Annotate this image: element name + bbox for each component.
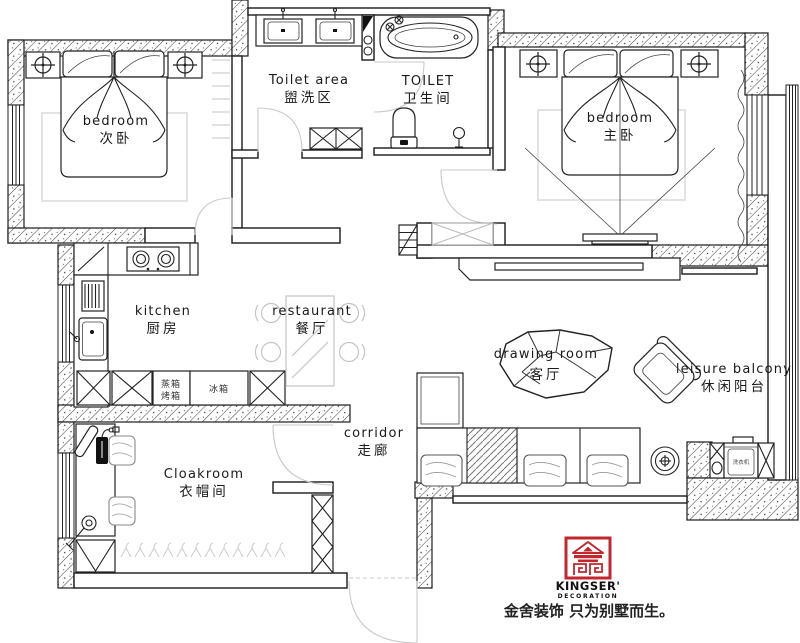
brand-name: KINGSER' bbox=[556, 579, 621, 593]
door-toilet-area bbox=[258, 108, 302, 152]
label-toilet-area-en: Toilet area bbox=[268, 73, 349, 88]
tv-icon bbox=[583, 234, 657, 244]
bathtub-icon bbox=[380, 16, 478, 58]
label-corridor-en: corridor bbox=[344, 426, 404, 441]
label-leisure-balcony-zh: 休闲阳台 bbox=[701, 379, 767, 395]
floor-plan-page: bedroom 次卧 Toilet area 盥洗区 TOILET 卫生间 be… bbox=[0, 0, 800, 643]
branding: KINGSER' DECORATION 金舍装饰 只为别墅而生。 bbox=[503, 538, 674, 620]
label-restaurant-en: restaurant bbox=[272, 304, 352, 319]
wardrobe-x-column bbox=[312, 495, 333, 573]
label-drawing-room-zh: 客厅 bbox=[530, 366, 563, 383]
balcony-cabinet-x-box bbox=[758, 443, 774, 478]
door-cloakroom bbox=[273, 425, 333, 485]
label-bedroom-secondary-zh: 次卧 bbox=[100, 131, 133, 147]
floor-speaker-icon bbox=[651, 447, 679, 475]
shoe-cabinet-v-box bbox=[76, 540, 115, 572]
label-steam-oven-2: 烤箱 bbox=[161, 390, 181, 402]
label-restaurant-zh: 餐厅 bbox=[296, 321, 329, 337]
label-toilet-area-zh: 盥洗区 bbox=[284, 90, 334, 106]
floor-drain-icon bbox=[454, 128, 465, 148]
label-toilet-en: TOILET bbox=[401, 74, 455, 89]
hanger-row bbox=[121, 543, 285, 557]
coffee-table-rock bbox=[500, 330, 612, 398]
chair-icon bbox=[255, 343, 280, 362]
brand-subtitle: DECORATION bbox=[558, 593, 619, 600]
door-bedroom-master bbox=[441, 170, 497, 224]
window-bedroom-master bbox=[747, 95, 768, 195]
chair-icon bbox=[340, 343, 365, 362]
window-bedroom-secondary bbox=[8, 105, 24, 185]
cabinet-x-box bbox=[310, 128, 362, 149]
tv-cabinet bbox=[459, 258, 680, 280]
label-cloakroom-zh: 衣帽间 bbox=[179, 484, 229, 500]
door-entrance bbox=[349, 578, 417, 643]
label-bedroom-master-en: bedroom bbox=[587, 111, 654, 126]
brand-tagline: 金舍装饰 只为别墅而生。 bbox=[503, 602, 674, 620]
room-bedroom-master bbox=[520, 50, 744, 262]
room-leisure-balcony bbox=[710, 437, 774, 478]
hall-cabinet-x-box bbox=[432, 223, 493, 245]
dish-rack-icon bbox=[82, 281, 104, 311]
label-steam-oven-1: 蒸箱 bbox=[161, 378, 181, 390]
window-cloakroom bbox=[58, 453, 74, 538]
side-cabinet bbox=[417, 373, 463, 428]
projection-lines bbox=[525, 77, 715, 236]
label-drawing-room-en: drawing room bbox=[494, 347, 598, 362]
label-bedroom-master-zh: 主卧 bbox=[604, 128, 637, 144]
washer-hose bbox=[733, 437, 753, 443]
toilet-icon bbox=[391, 108, 417, 148]
label-fridge: 冰箱 bbox=[209, 383, 229, 395]
utility-sink-icon bbox=[710, 443, 724, 478]
label-washer: 洗衣机 bbox=[733, 458, 750, 466]
label-kitchen-en: kitchen bbox=[135, 304, 191, 319]
label-toilet-zh: 卫生间 bbox=[403, 91, 453, 107]
step-icon bbox=[399, 225, 417, 255]
label-leisure-balcony-en: leisure balcony bbox=[676, 362, 792, 377]
stove-icon bbox=[127, 247, 179, 271]
label-bedroom-secondary-en: bedroom bbox=[83, 114, 150, 129]
label-cloakroom-en: Cloakroom bbox=[164, 467, 245, 482]
window-kitchen bbox=[58, 285, 74, 362]
window-balcony-bay bbox=[786, 85, 798, 480]
curtain-icon bbox=[738, 70, 744, 262]
kingser-logo-icon bbox=[566, 538, 610, 578]
floor-plan-drawing: bedroom 次卧 Toilet area 盥洗区 TOILET 卫生间 be… bbox=[0, 0, 800, 643]
seat-cushion bbox=[421, 455, 628, 486]
label-kitchen-zh: 厨房 bbox=[147, 321, 180, 337]
wardrobe-hint bbox=[212, 60, 230, 138]
door-bedroom-secondary bbox=[195, 198, 232, 235]
label-corridor-zh: 走廊 bbox=[358, 442, 391, 459]
